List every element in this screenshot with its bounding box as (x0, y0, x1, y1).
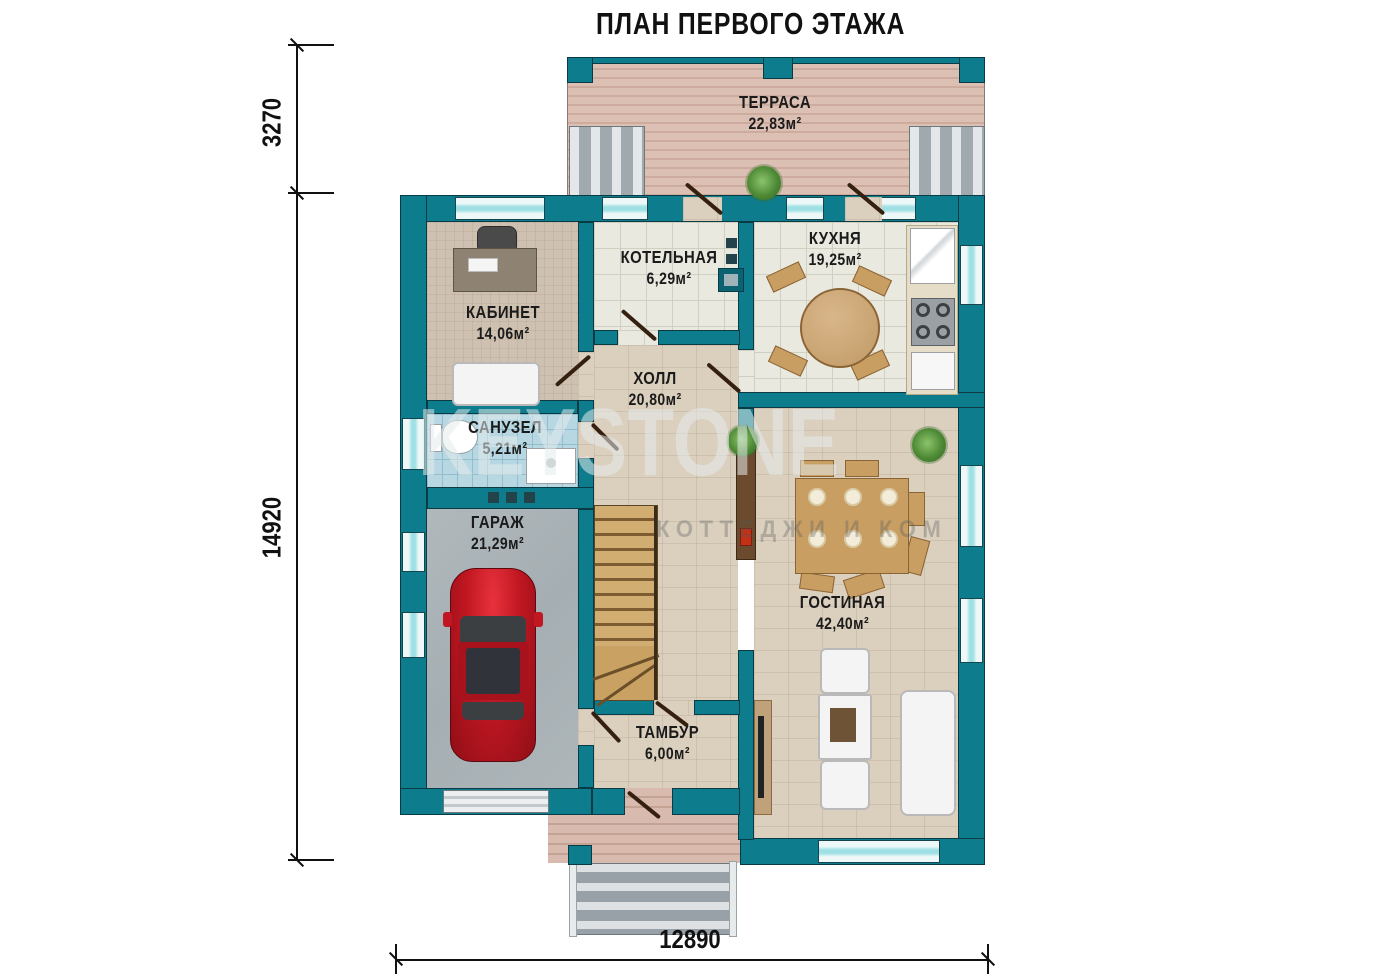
wall-vestibule-top (694, 700, 740, 715)
car-windshield (460, 616, 526, 644)
wall-bathroom-right (578, 458, 594, 490)
window-living-bottom (818, 840, 940, 863)
car-sunroof (466, 648, 520, 694)
window-kitchen-right (960, 245, 983, 305)
living-sofa (900, 690, 956, 816)
office-sofa (452, 362, 540, 406)
plate (844, 488, 862, 506)
room-terrace-name: ТЕРРАСА (703, 92, 848, 114)
plant (728, 426, 758, 456)
entry-steps-rail (569, 861, 577, 937)
door-opening-kitchen (738, 350, 754, 392)
sink-faucet (546, 458, 556, 468)
room-garage-label: ГАРАЖ 21,29м² (444, 512, 550, 555)
room-office-area: 14,06м² (439, 324, 567, 345)
car-rear-window (462, 702, 524, 720)
wall-garage-right (578, 745, 594, 788)
garage-door (443, 790, 549, 813)
wall-vestibule-bottom (592, 788, 625, 815)
window-office (455, 197, 545, 220)
room-living-name: ГОСТИНАЯ (781, 592, 904, 614)
room-boiler-label: КОТЕЛЬНАЯ 6,29м² (610, 247, 727, 290)
staircase (594, 505, 658, 701)
plant (912, 428, 946, 462)
room-vestibule-name: ТАМБУР (610, 722, 725, 744)
stove-burner (936, 303, 950, 317)
room-garage-name: ГАРАЖ (444, 512, 550, 534)
plate (880, 488, 898, 506)
room-hall-name: ХОЛЛ (608, 368, 702, 390)
dim-line-vertical (296, 45, 298, 861)
kitchen-table (800, 288, 880, 368)
fireplace-fire (740, 528, 752, 546)
stove-burner (916, 303, 930, 317)
kitchen-fridge (910, 228, 955, 284)
wall-living-left (738, 650, 754, 840)
kitchen-sink (911, 352, 955, 390)
dim-label-terrace-depth: 3270 (257, 89, 288, 157)
wall-garage-right (578, 509, 594, 709)
plate (880, 530, 898, 548)
window-garage (402, 612, 425, 658)
page-title: ПЛАН ПЕРВОГО ЭТАЖА (596, 6, 900, 42)
plant (747, 166, 781, 200)
room-terrace-label: ТЕРРАСА 22,83м² (703, 92, 848, 135)
terrace-steps-left (569, 126, 645, 197)
room-kitchen-name: КУХНЯ (776, 228, 895, 250)
room-vestibule-label: ТАМБУР 6,00м² (610, 722, 725, 765)
room-boiler-area: 6,29м² (610, 269, 727, 290)
wall-detail-square (506, 492, 517, 503)
window-bathroom (402, 418, 425, 470)
window-garage (402, 532, 425, 572)
room-bathroom-area: 5,21м² (450, 439, 561, 460)
wall-bathroom-right (578, 400, 594, 422)
stair-steps (595, 506, 657, 646)
window-boiler (602, 197, 648, 220)
room-hall-label: ХОЛЛ 20,80м² (608, 368, 702, 411)
tv-screen (758, 716, 764, 798)
car-mirror (534, 612, 543, 627)
plate (808, 488, 826, 506)
floor-plan-canvas: ПЛАН ПЕРВОГО ЭТАЖА 3270 14920 12890 ТЕРР… (0, 0, 1400, 976)
stove-burner (916, 325, 930, 339)
plate (808, 530, 826, 548)
room-garage-area: 21,29м² (444, 534, 550, 555)
terrace-pillar (959, 57, 985, 83)
desk-paper (468, 258, 498, 272)
room-living-area: 42,40м² (781, 614, 904, 635)
window-kitchen-top (880, 197, 916, 220)
window-living-right (960, 598, 983, 663)
room-terrace-area: 22,83м² (703, 114, 848, 135)
wall-detail-square (524, 492, 535, 503)
room-kitchen-label: КУХНЯ 19,25м² (776, 228, 895, 271)
dining-chair (908, 492, 925, 526)
room-hall-area: 20,80м² (608, 390, 702, 411)
wall-office-right (578, 222, 594, 352)
toilet-tank (430, 424, 442, 452)
room-boiler-name: КОТЕЛЬНАЯ (610, 247, 727, 269)
wall-porch-side (568, 845, 592, 865)
coffee-table-inset (830, 708, 856, 742)
room-bathroom-name: САНУЗЕЛ (450, 417, 561, 439)
dining-chair (845, 460, 879, 477)
window-kitchen-top (786, 197, 824, 220)
wall-boiler-bottom (658, 330, 740, 345)
room-kitchen-area: 19,25м² (776, 250, 895, 271)
terrace-pillar (763, 57, 793, 79)
wall-vestibule-bottom (672, 788, 740, 815)
wall-left (400, 195, 427, 815)
room-bathroom-label: САНУЗЕЛ 5,21м² (450, 417, 561, 460)
wall-detail-square (488, 492, 499, 503)
living-armchair (820, 760, 870, 810)
dim-label-house-depth: 14920 (257, 485, 288, 570)
dining-chair (800, 460, 834, 477)
plate (844, 530, 862, 548)
room-office-label: КАБИНЕТ 14,06м² (439, 302, 567, 345)
room-living-label: ГОСТИНАЯ 42,40м² (781, 592, 904, 635)
terrace-pillar (567, 57, 593, 83)
window-living-right (960, 465, 983, 547)
terrace-steps-right (909, 126, 985, 197)
living-armchair (820, 648, 870, 694)
car-mirror (443, 612, 452, 627)
room-office-name: КАБИНЕТ (439, 302, 567, 324)
stair-railing (654, 506, 657, 700)
wall-boiler-bottom (594, 330, 618, 345)
room-vestibule-area: 6,00м² (610, 744, 725, 765)
stove-burner (936, 325, 950, 339)
dim-line-horizontal (396, 959, 988, 961)
dim-label-house-width: 12890 (614, 924, 767, 955)
